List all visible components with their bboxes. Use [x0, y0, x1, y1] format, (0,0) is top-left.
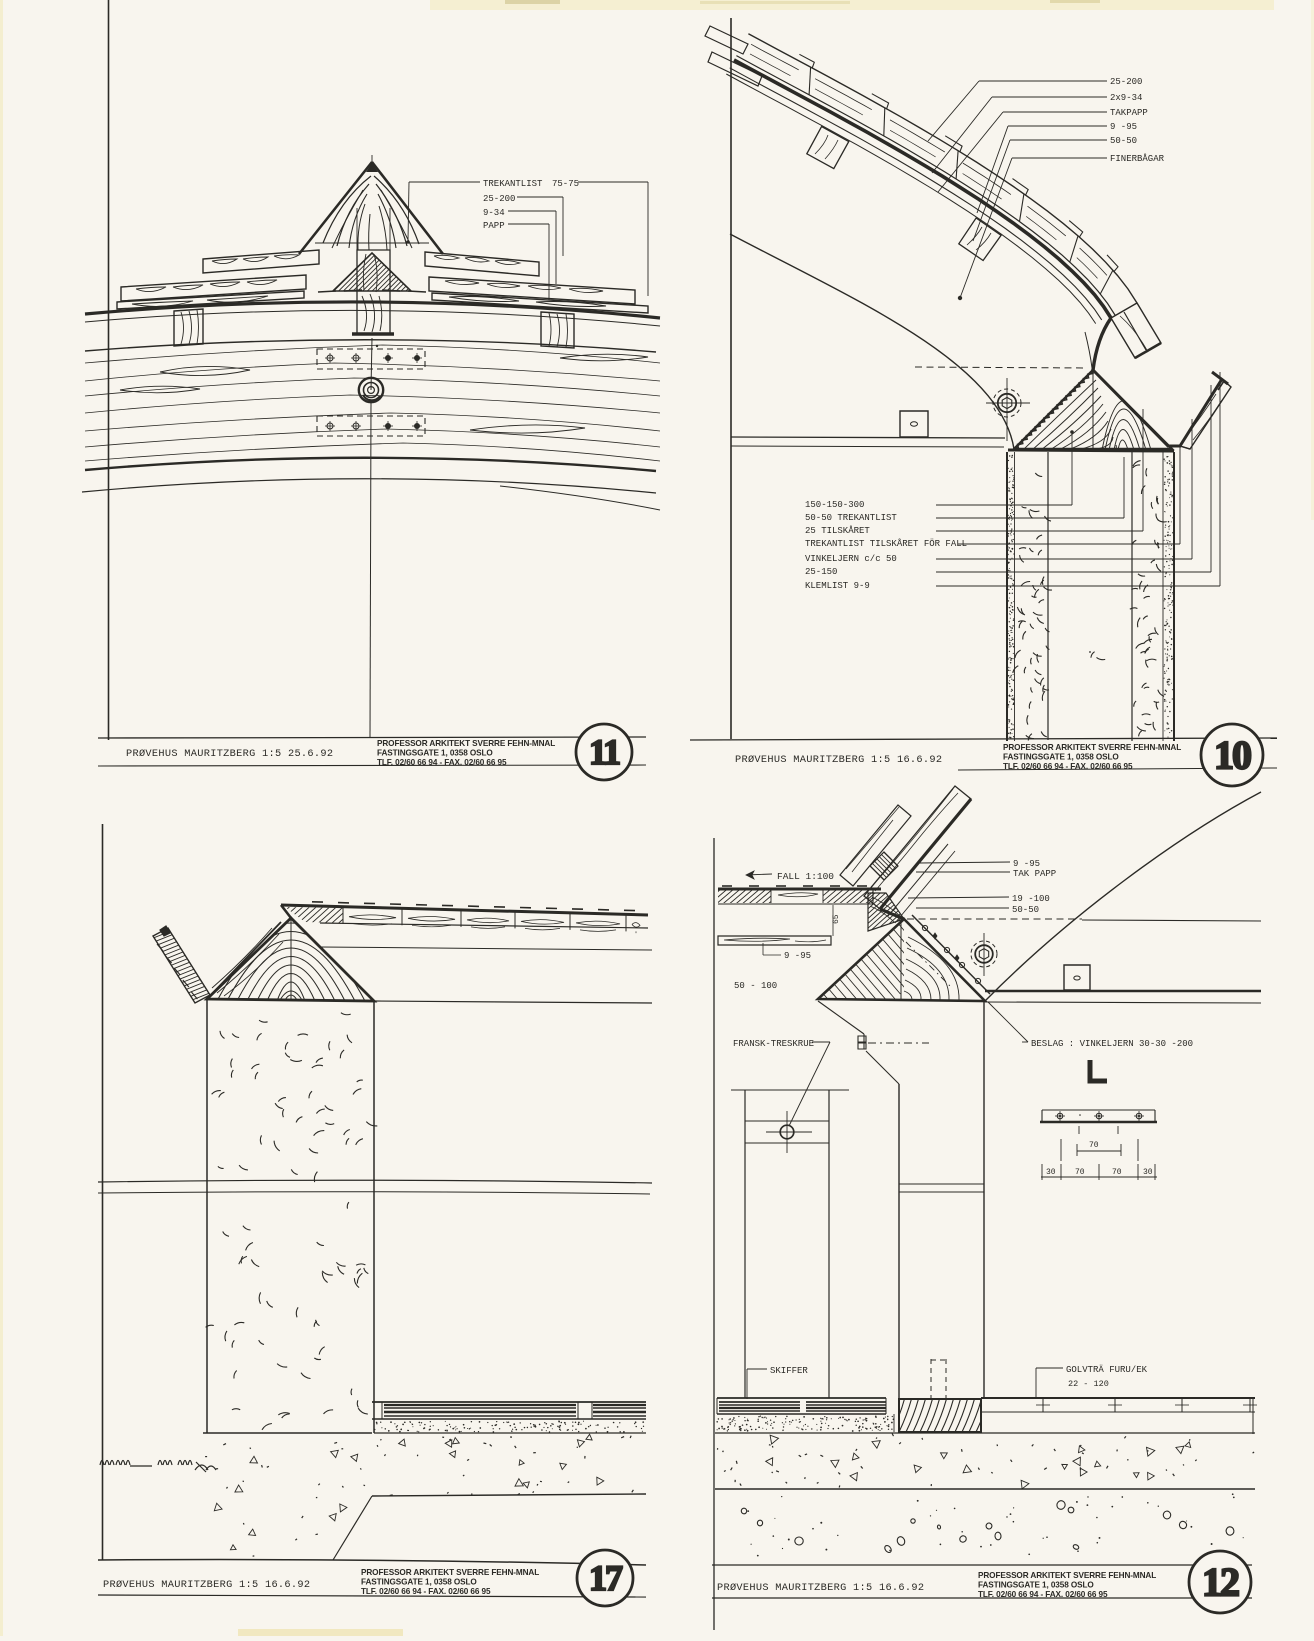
svg-text:50-50 TREKANTLIST: 50-50 TREKANTLIST [805, 513, 897, 523]
svg-text:FRANSK-TRESKRUE: FRANSK-TRESKRUE [733, 1039, 814, 1049]
svg-text:17: 17 [589, 1558, 623, 1598]
svg-text:BESLAG : VINKELJERN 30-30 -2: BESLAG : VINKELJERN 30-30 -200 [1031, 1039, 1193, 1049]
svg-text:PRØVEHUS MAURITZBERG 1:5 1: PRØVEHUS MAURITZBERG 1:5 16.6.92 [103, 1579, 310, 1591]
svg-text:PROFESSOR ARKITEKT SVERRE FEHN: PROFESSOR ARKITEKT SVERRE FEHN-MNAL [1003, 743, 1181, 752]
svg-text:50-50: 50-50 [1110, 136, 1137, 146]
svg-text:PROFESSOR ARKITEKT SVERRE FEHN: PROFESSOR ARKITEKT SVERRE FEHN-MNAL [361, 1568, 539, 1577]
svg-text:65: 65 [832, 914, 841, 924]
svg-text:FINERBÅGAR: FINERBÅGAR [1110, 153, 1165, 164]
svg-text:PRØVEHUS MAURITZBERG 1:5: PRØVEHUS MAURITZBERG 1:5 16.6.92 [717, 1582, 924, 1594]
svg-text:50-50: 50-50 [1012, 905, 1039, 915]
svg-text:TAKPAPP: TAKPAPP [1110, 108, 1148, 118]
svg-text:25-200: 25-200 [483, 194, 515, 204]
svg-text:FALL 1:100: FALL 1:100 [777, 871, 834, 882]
svg-text:75-75: 75-75 [552, 179, 579, 189]
svg-text:9 -95: 9 -95 [1013, 859, 1040, 869]
svg-text:22 - 120: 22 - 120 [1068, 1379, 1109, 1389]
svg-text:PRØVEHUS MAURITZBERG 1:5 2: PRØVEHUS MAURITZBERG 1:5 25.6.92 [126, 748, 333, 760]
svg-text:50 - 100: 50 - 100 [734, 981, 777, 991]
svg-text:VINKELJERN c/c 50: VINKELJERN c/c 50 [805, 554, 897, 564]
svg-text:TREKANTLIST TILSKÅRET FÖR FALL: TREKANTLIST TILSKÅRET FÖR FALL [805, 538, 967, 549]
svg-text:SKIFFER: SKIFFER [770, 1366, 808, 1376]
svg-text:70: 70 [1089, 1141, 1099, 1150]
svg-text:TAK PAPP: TAK PAPP [1013, 869, 1056, 879]
svg-text:FASTINGSGATE 1, 0358 OSLO: FASTINGSGATE 1, 0358 OSLO [1003, 753, 1119, 762]
svg-text:19 -100: 19 -100 [1012, 894, 1050, 904]
svg-text:30: 30 [1143, 1168, 1153, 1177]
svg-text:PRØVEHUS MAURITZBERG 1:5 16: PRØVEHUS MAURITZBERG 1:5 16.6.92 [735, 754, 942, 766]
svg-text:TLF. 02/60 66 94 - FAX. 02/60: TLF. 02/60 66 94 - FAX. 02/60 66 95 [978, 1590, 1108, 1599]
svg-text:FASTINGSGATE 1, 0358 OSLO: FASTINGSGATE 1, 0358 OSLO [377, 749, 493, 758]
svg-text:GOLVTRÄ FURU/EK: GOLVTRÄ FURU/EK [1066, 1365, 1148, 1375]
svg-text:PROFESSOR ARKITEKT SVERRE FEHN: PROFESSOR ARKITEKT SVERRE FEHN-MNAL [377, 739, 555, 748]
svg-text:TLF. 02/60 66 94 - FAX. 02/60: TLF. 02/60 66 94 - FAX. 02/60 66 95 [1003, 762, 1133, 771]
svg-text:KLEMLIST 9-9: KLEMLIST 9-9 [805, 581, 870, 591]
svg-text:2x9-34: 2x9-34 [1110, 93, 1142, 103]
svg-text:TLF. 02/60 66 94 - FAX. 02/60: TLF. 02/60 66 94 - FAX. 02/60 66 95 [377, 758, 507, 767]
svg-text:150-150-300: 150-150-300 [805, 500, 864, 510]
svg-text:FASTINGSGATE 1, 0358 OSLO: FASTINGSGATE 1, 0358 OSLO [978, 1581, 1094, 1590]
svg-text:11: 11 [589, 732, 620, 772]
svg-text:70: 70 [1075, 1168, 1085, 1177]
svg-text:10: 10 [1214, 733, 1251, 778]
svg-text:9 -95: 9 -95 [784, 951, 811, 961]
svg-text:9-34: 9-34 [483, 208, 505, 218]
svg-text:PROFESSOR ARKITEKT SVERRE FEHN: PROFESSOR ARKITEKT SVERRE FEHN-MNAL [978, 1571, 1156, 1580]
svg-text:TREKANTLIST: TREKANTLIST [483, 179, 543, 189]
svg-text:25-150: 25-150 [805, 567, 837, 577]
svg-text:FASTINGSGATE 1, 0358 OSLO: FASTINGSGATE 1, 0358 OSLO [361, 1578, 477, 1587]
svg-text:PAPP: PAPP [483, 221, 505, 231]
svg-text:TLF. 02/60 66 94 - FAX. 02/60: TLF. 02/60 66 94 - FAX. 02/60 66 95 [361, 1587, 491, 1596]
svg-text:12: 12 [1202, 1560, 1239, 1605]
svg-text:9 -95: 9 -95 [1110, 122, 1137, 132]
svg-text:30: 30 [1046, 1168, 1056, 1177]
svg-text:25-200: 25-200 [1110, 77, 1142, 87]
svg-text:25 TILSKÅRET: 25 TILSKÅRET [805, 525, 870, 536]
svg-text:70: 70 [1112, 1168, 1122, 1177]
